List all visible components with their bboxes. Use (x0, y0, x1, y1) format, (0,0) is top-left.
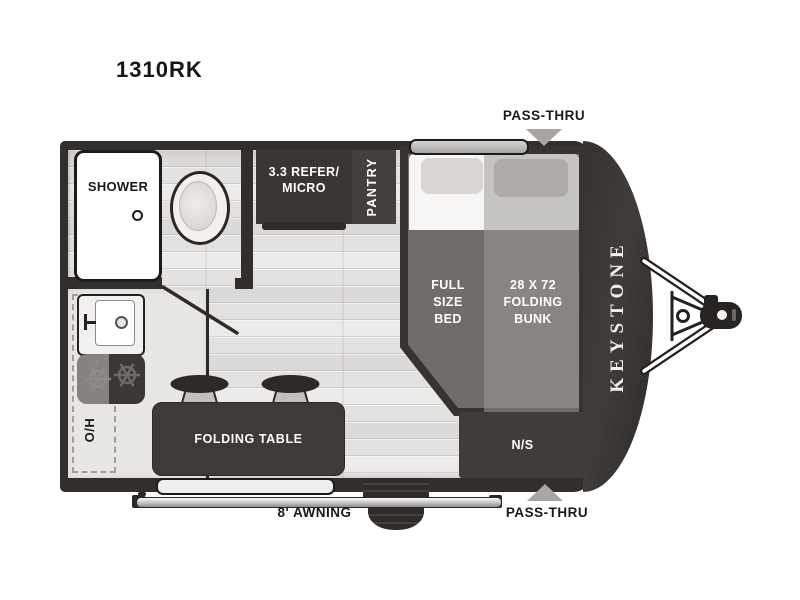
folding-bunk-label: 28 X 72 FOLDING BUNK (482, 277, 584, 328)
folding-table-label: FOLDING TABLE (194, 431, 302, 447)
kitchen-sink-icon (77, 294, 145, 356)
pillow (421, 158, 483, 194)
model-title: 1310RK (116, 57, 203, 83)
bathroom-wall-divider (241, 150, 253, 288)
sink-drain-icon (115, 316, 128, 329)
nightstand: N/S (459, 412, 586, 478)
brand-label: KEYSTONE (607, 216, 629, 416)
pass-thru-top-arrow-icon (526, 129, 562, 146)
counter-lip (262, 222, 346, 230)
faucet-arm (84, 321, 96, 324)
full-size-bed-label: FULL SIZE BED (407, 277, 489, 328)
nightstand-label: N/S (511, 437, 533, 453)
pantry-label: PANTRY (364, 127, 384, 247)
pass-thru-bottom-arrow-icon (527, 484, 563, 501)
awning-label: 8' AWNING (237, 505, 392, 520)
refer-micro-label: 3.3 REFER/ MICRO (256, 164, 352, 196)
toilet-bowl (179, 181, 217, 231)
shower-drain-icon (132, 210, 143, 221)
window-icon (409, 139, 529, 155)
overhead-cabinet-label: O/H (82, 390, 102, 470)
folding-table: FOLDING TABLE (152, 402, 345, 476)
toilet-icon (170, 171, 230, 245)
bathroom-wall-foot (235, 278, 253, 289)
pass-thru-top-label: PASS-THRU (464, 108, 624, 123)
entry-door-icon (156, 478, 335, 495)
pass-thru-bottom-label: PASS-THRU (467, 505, 627, 520)
shower-stall: SHOWER (74, 150, 162, 282)
floorplan-canvas: 1310RK PASS-THRU SHOWER O/H 3.3 REFER/ M… (0, 0, 800, 600)
shower-label: SHOWER (77, 179, 159, 194)
